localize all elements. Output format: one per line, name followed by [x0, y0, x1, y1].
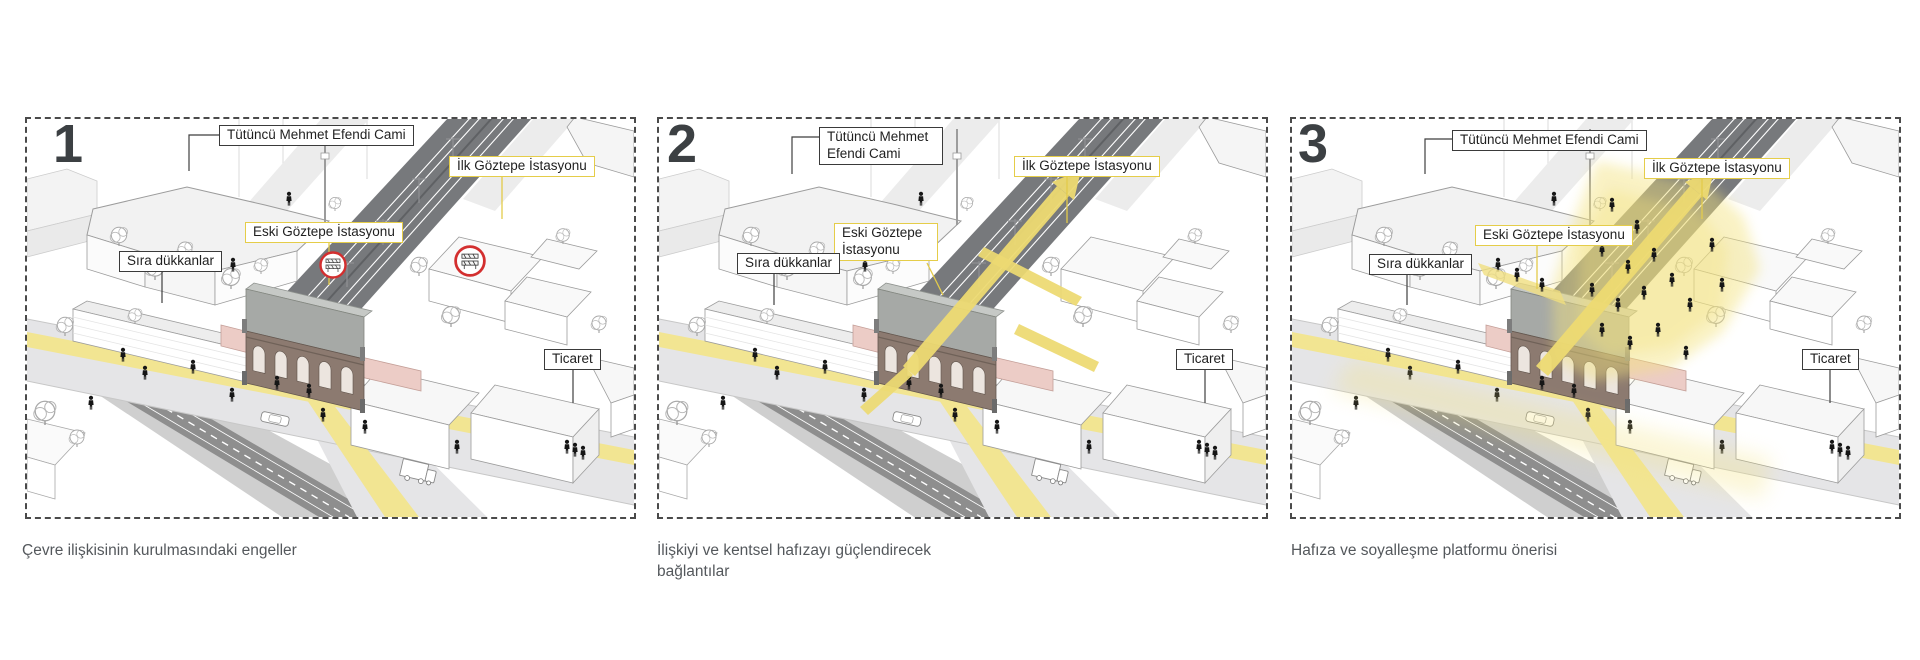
label-commerce: Ticaret	[1802, 349, 1859, 370]
label-shops: Sıra dükkanlar	[119, 251, 222, 272]
caption-panel-1: Çevre ilişkisinin kurulmasındaki engelle…	[22, 541, 297, 562]
label-old-station: Eski Göztepe İstasyonu	[834, 223, 938, 261]
obstacle-marker-icon	[321, 253, 346, 278]
label-new-station: İlk Göztepe İstasyonu	[1014, 156, 1160, 177]
label-new-station: İlk Göztepe İstasyonu	[449, 156, 595, 177]
connection-arrow	[860, 170, 1099, 415]
label-commerce: Ticaret	[1176, 349, 1233, 370]
label-commerce: Ticaret	[544, 349, 601, 370]
caption-panel-2: İlişkiyi ve kentsel hafızayı güçlendirec…	[657, 541, 969, 583]
diagram-panel-1: 1 Tütüncü Mehmet Efendi Cami İlk Göztepe…	[25, 117, 636, 519]
label-shops: Sıra dükkanlar	[1369, 254, 1472, 275]
label-mosque: Tütüncü Mehmet Efendi Cami	[819, 127, 943, 165]
diagram-panel-3: 3 Tütüncü Mehmet Efendi Cami İlk Göztepe…	[1290, 117, 1901, 519]
label-new-station: İlk Göztepe İstasyonu	[1644, 158, 1790, 179]
panel-3-overlay	[1292, 119, 1899, 517]
label-old-station: Eski Göztepe İstasyonu	[1475, 225, 1633, 246]
diagram-panel-2: 2 Tütüncü Mehmet Efendi Cami İlk Göztepe…	[657, 117, 1268, 519]
panel-number: 2	[667, 117, 697, 171]
panel-1-overlay	[27, 119, 634, 517]
label-old-station: Eski Göztepe İstasyonu	[245, 222, 403, 243]
panel-2-overlay	[659, 119, 1266, 517]
caption-panel-3: Hafıza ve soyalleşme platformu önerisi	[1291, 541, 1557, 562]
panel-number: 1	[53, 117, 83, 171]
comparison-diagram: 1 Tütüncü Mehmet Efendi Cami İlk Göztepe…	[0, 0, 1920, 660]
panel-number: 3	[1298, 117, 1328, 171]
label-shops: Sıra dükkanlar	[737, 253, 840, 274]
obstacle-marker-icon	[456, 247, 485, 276]
label-mosque: Tütüncü Mehmet Efendi Cami	[1452, 130, 1647, 151]
label-mosque: Tütüncü Mehmet Efendi Cami	[219, 125, 414, 146]
social-platform-highlight	[1332, 161, 1772, 499]
